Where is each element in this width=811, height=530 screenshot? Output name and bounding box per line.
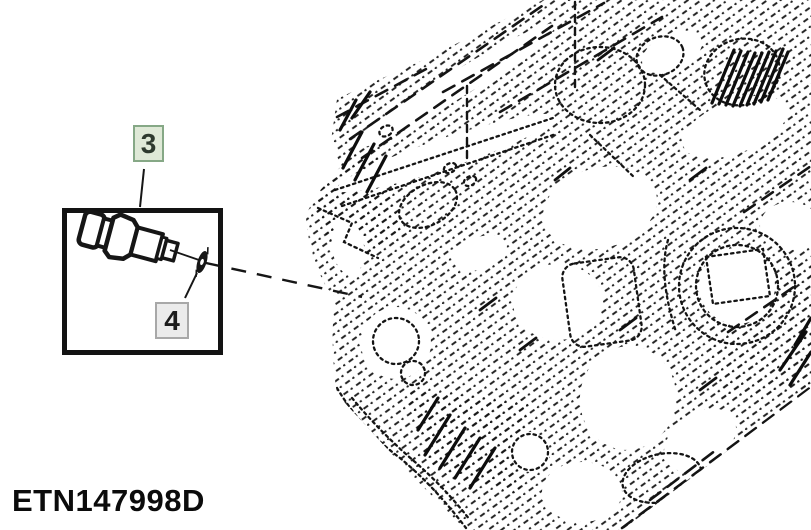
diagram-line-art <box>0 0 811 530</box>
washer-part-drawing <box>193 245 211 278</box>
parts-diagram-canvas: 3 4 ETN147998D <box>0 0 811 530</box>
sensor-part-drawing <box>76 206 181 274</box>
leader-line-3 <box>140 169 144 207</box>
engine-assembly-drawing <box>300 0 811 530</box>
callout-label-4[interactable]: 4 <box>155 302 189 339</box>
callout-label-3[interactable]: 3 <box>133 125 164 162</box>
leader-line-4 <box>185 273 197 298</box>
image-code-text: ETN147998D <box>12 483 205 519</box>
